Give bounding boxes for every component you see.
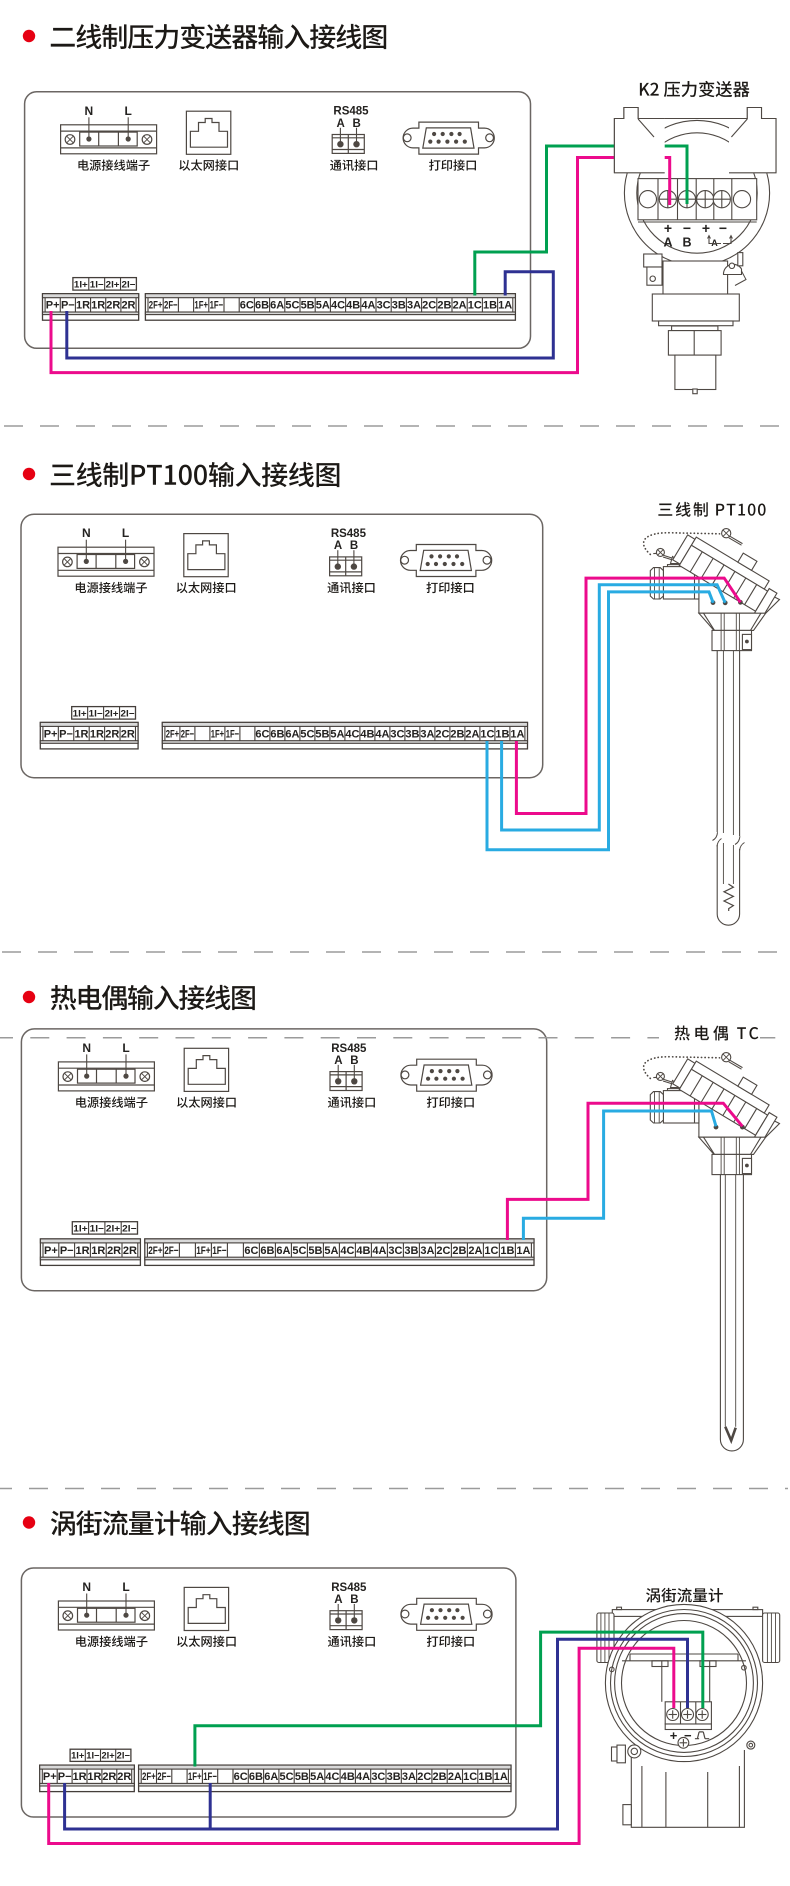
svg-text:2R: 2R (117, 1771, 131, 1783)
svg-text:P−: P− (61, 300, 75, 312)
svg-text:2I+: 2I+ (105, 708, 119, 718)
svg-text:1I−: 1I− (90, 1223, 104, 1233)
svg-text:4B: 4B (341, 1771, 355, 1783)
svg-text:2A: 2A (465, 728, 479, 740)
svg-text:5A: 5A (324, 1245, 338, 1257)
svg-text:2I−: 2I− (121, 708, 135, 718)
svg-text:4B: 4B (360, 728, 374, 740)
svg-text:6C: 6C (244, 1245, 258, 1257)
svg-text:4C: 4C (331, 300, 345, 312)
svg-text:3A: 3A (407, 300, 421, 312)
svg-text:5C: 5C (300, 728, 314, 740)
svg-text:6A: 6A (270, 300, 284, 312)
svg-text:+: + (670, 1728, 678, 1743)
svg-text:P+: P+ (46, 300, 60, 312)
svg-text:3C: 3C (390, 728, 404, 740)
svg-text:4A: 4A (356, 1771, 370, 1783)
svg-text:1R: 1R (76, 300, 90, 312)
svg-text:1F−: 1F− (212, 1245, 226, 1257)
svg-text:5B: 5B (315, 728, 329, 740)
svg-text:1I−: 1I− (89, 708, 103, 718)
svg-text:4C: 4C (325, 1771, 339, 1783)
svg-text:1R: 1R (91, 300, 105, 312)
svg-text:5A: 5A (316, 300, 330, 312)
svg-text:1I−: 1I− (86, 1751, 99, 1761)
svg-text:1A: 1A (516, 1245, 530, 1257)
svg-text:5B: 5B (301, 300, 315, 312)
svg-text:2R: 2R (106, 300, 120, 312)
svg-text:P+: P+ (44, 728, 58, 740)
svg-text:3A: 3A (402, 1771, 416, 1783)
svg-text:6A: 6A (264, 1771, 278, 1783)
svg-text:4B: 4B (356, 1245, 370, 1257)
svg-text:1R: 1R (90, 728, 104, 740)
svg-text:2R: 2R (121, 300, 135, 312)
svg-text:1I−: 1I− (90, 279, 104, 289)
svg-text:5C: 5C (285, 300, 299, 312)
svg-text:6B: 6B (270, 728, 284, 740)
svg-text:5C: 5C (292, 1245, 306, 1257)
svg-text:2F−: 2F− (164, 300, 178, 312)
svg-text:+: + (702, 220, 710, 236)
svg-text:5B: 5B (308, 1245, 322, 1257)
svg-text:2C: 2C (422, 300, 436, 312)
svg-text:1R: 1R (91, 1245, 105, 1257)
svg-text:3B: 3B (405, 728, 419, 740)
svg-text:4A: 4A (372, 1245, 386, 1257)
svg-text:6A: 6A (276, 1245, 290, 1257)
svg-text:1A: 1A (498, 300, 512, 312)
svg-text:4C: 4C (340, 1245, 354, 1257)
svg-text:6C: 6C (255, 728, 269, 740)
svg-text:1I+: 1I+ (74, 279, 88, 289)
svg-text:1C: 1C (468, 300, 482, 312)
svg-text:1F+: 1F+ (211, 728, 224, 740)
svg-text:P−: P− (60, 1245, 74, 1257)
svg-text:1A: 1A (510, 728, 524, 740)
svg-text:2I−: 2I− (117, 1751, 130, 1761)
svg-text:2R: 2R (102, 1771, 116, 1783)
svg-text:1F−: 1F− (226, 728, 239, 740)
svg-text:2I−: 2I− (122, 1223, 136, 1233)
svg-text:3A: 3A (420, 728, 434, 740)
svg-text:1C: 1C (484, 1245, 498, 1257)
svg-text:2I+: 2I+ (106, 279, 120, 289)
svg-text:2F+: 2F+ (148, 1245, 162, 1257)
svg-text:1F+: 1F+ (188, 1771, 202, 1783)
svg-text:3B: 3B (404, 1245, 418, 1257)
svg-text:2C: 2C (417, 1771, 431, 1783)
svg-text:4C: 4C (345, 728, 359, 740)
svg-text:6B: 6B (255, 300, 269, 312)
svg-text:1B: 1B (483, 300, 497, 312)
svg-text:5B: 5B (295, 1771, 309, 1783)
svg-text:3C: 3C (377, 300, 391, 312)
svg-text:6C: 6C (240, 300, 254, 312)
svg-text:2B: 2B (450, 728, 464, 740)
svg-text:2B: 2B (437, 300, 451, 312)
svg-text:2R: 2R (107, 1245, 121, 1257)
svg-text:−: − (683, 220, 691, 236)
svg-text:2R: 2R (121, 728, 135, 740)
svg-text:2B: 2B (452, 1245, 466, 1257)
svg-text:P+: P+ (44, 1245, 58, 1257)
svg-text:1R: 1R (87, 1771, 101, 1783)
svg-text:2B: 2B (433, 1771, 447, 1783)
svg-text:1R: 1R (73, 1771, 87, 1783)
svg-text:−: − (719, 220, 727, 236)
svg-text:2R: 2R (105, 728, 119, 740)
svg-text:2F+: 2F+ (142, 1771, 156, 1783)
svg-text:1B: 1B (478, 1771, 492, 1783)
svg-text:1A: 1A (494, 1771, 508, 1783)
svg-text:6B: 6B (260, 1245, 274, 1257)
svg-text:2C: 2C (435, 728, 449, 740)
svg-text:6B: 6B (249, 1771, 263, 1783)
svg-text:2F+: 2F+ (149, 300, 163, 312)
svg-text:2F−: 2F− (181, 728, 194, 740)
svg-text:P−: P− (59, 728, 73, 740)
svg-text:5C: 5C (280, 1771, 294, 1783)
svg-text:1F+: 1F+ (194, 300, 208, 312)
svg-text:2R: 2R (123, 1245, 137, 1257)
svg-text:2A: 2A (453, 300, 467, 312)
svg-text:1C: 1C (480, 728, 494, 740)
svg-text:P+: P+ (43, 1771, 57, 1783)
svg-text:6C: 6C (234, 1771, 248, 1783)
svg-text:B: B (682, 236, 691, 250)
svg-text:+: + (664, 220, 672, 236)
svg-text:6A: 6A (285, 728, 299, 740)
svg-text:2F−: 2F− (164, 1245, 178, 1257)
svg-text:2I+: 2I+ (106, 1223, 120, 1233)
svg-text:1B: 1B (495, 728, 509, 740)
svg-text:4A: 4A (375, 728, 389, 740)
svg-text:2A: 2A (448, 1771, 462, 1783)
svg-text:3B: 3B (392, 300, 406, 312)
svg-text:2F+: 2F+ (166, 728, 179, 740)
svg-text:1I+: 1I+ (71, 1751, 84, 1761)
svg-text:3A: 3A (420, 1245, 434, 1257)
svg-text:1R: 1R (75, 1245, 89, 1257)
svg-text:1F−: 1F− (210, 300, 224, 312)
svg-text:A: A (663, 236, 672, 250)
svg-text:1I+: 1I+ (73, 708, 87, 718)
svg-text:3B: 3B (387, 1771, 401, 1783)
svg-text:2I+: 2I+ (102, 1751, 115, 1761)
svg-text:1F+: 1F+ (196, 1245, 210, 1257)
svg-text:2C: 2C (436, 1245, 450, 1257)
svg-text:2A: 2A (468, 1245, 482, 1257)
svg-text:5A: 5A (310, 1771, 324, 1783)
svg-text:1B: 1B (500, 1245, 514, 1257)
svg-text:4B: 4B (346, 300, 360, 312)
svg-text:5A: 5A (330, 728, 344, 740)
svg-text:1F−: 1F− (203, 1771, 217, 1783)
svg-text:4A: 4A (361, 300, 375, 312)
svg-text:3C: 3C (371, 1771, 385, 1783)
svg-text:2I−: 2I− (122, 279, 136, 289)
svg-text:P−: P− (58, 1771, 72, 1783)
svg-text:2F−: 2F− (157, 1771, 171, 1783)
svg-text:3C: 3C (388, 1245, 402, 1257)
svg-text:1C: 1C (463, 1771, 477, 1783)
svg-text:1I+: 1I+ (73, 1223, 87, 1233)
svg-text:1R: 1R (74, 728, 88, 740)
